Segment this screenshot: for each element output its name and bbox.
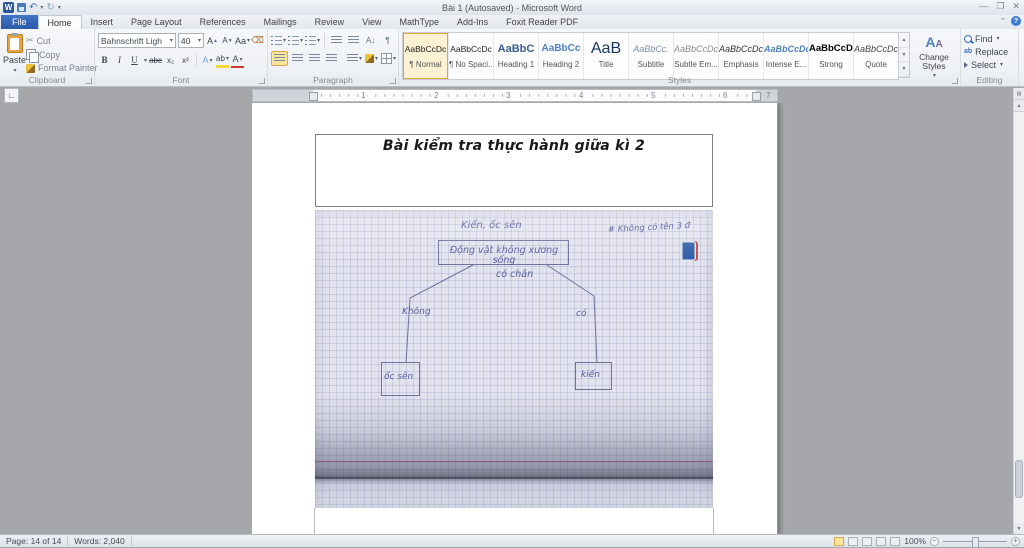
style-name: Heading 2	[539, 60, 583, 69]
minimize-ribbon-icon[interactable]: ⌃	[1000, 17, 1006, 25]
show-hide-marks-button[interactable]: ¶	[380, 34, 395, 47]
diagram-branch-no-label: Không	[402, 307, 431, 317]
indent-marker-left[interactable]	[309, 92, 318, 101]
underline-button[interactable]: U	[128, 54, 141, 67]
style-preview: AaBbCcDc	[809, 38, 853, 60]
change-styles-icon: AA	[925, 35, 942, 52]
tab-add-ins[interactable]: Add-Ins	[448, 15, 497, 29]
style-heading-2[interactable]: AaBbCc Heading 2	[538, 33, 583, 79]
style-emphasis[interactable]: AaBbCcDc Emphasis	[718, 33, 763, 79]
style-subtitle[interactable]: AaBbCc. Subtitle	[628, 33, 673, 79]
replace-button[interactable]: ab Replace	[964, 45, 1015, 58]
ruler-number: 2	[432, 90, 440, 101]
notebook-margin-line	[315, 461, 713, 462]
italic-button[interactable]: I	[113, 54, 126, 67]
grow-font-button[interactable]: A▲	[206, 34, 219, 47]
help-icon[interactable]: ?	[1011, 16, 1021, 26]
diagram-root-label: Động vật không xương sống	[444, 246, 564, 266]
style-no-spacing[interactable]: AaBbCcDc ¶ No Spaci...	[448, 33, 493, 79]
group-styles: AaBbCcDc ¶ Normal AaBbCcDc ¶ No Spaci...…	[399, 29, 961, 86]
align-right-button[interactable]	[307, 52, 322, 65]
bold-button[interactable]: B	[98, 54, 111, 67]
paragraph-group-label: Paragraph	[268, 75, 398, 85]
font-color-button[interactable]: A▾	[231, 53, 244, 68]
borders-icon	[381, 53, 392, 64]
font-family-dropdown-icon[interactable]: ▾	[170, 37, 173, 44]
align-center-button[interactable]	[290, 52, 305, 65]
format-painter-icon	[26, 64, 35, 73]
multilevel-list-icon	[305, 36, 316, 45]
scroll-up-icon[interactable]: ▲	[1014, 100, 1024, 112]
font-family-value: Bahnschrift Ligh	[101, 36, 162, 46]
paste-button[interactable]: Paste ▾	[3, 31, 26, 74]
document-page[interactable]: Bài kiểm tra thực hành giữa kì 2 Kiến, ố…	[252, 103, 778, 535]
style-name: ¶ Normal	[403, 60, 448, 69]
style-preview: AaBbCcDc	[449, 38, 493, 60]
bold-label: B	[101, 55, 107, 65]
view-full-screen-icon[interactable]	[848, 537, 858, 546]
ruler-number: 4	[577, 90, 585, 101]
superscript-button[interactable]: x²	[179, 54, 192, 67]
subscript-label: x₂	[167, 56, 174, 65]
style-name: Subtitle	[629, 60, 673, 69]
diagram-branch-yes-label: có	[576, 309, 586, 319]
style-preview: AaBbCcDc	[674, 38, 718, 60]
vertical-scrollbar[interactable]: ▤ ▲ ▼	[1013, 88, 1024, 535]
multilevel-list-button[interactable]: ▾	[305, 34, 320, 47]
text-effects-button[interactable]: A▾	[201, 54, 214, 67]
style-normal[interactable]: AaBbCcDc ¶ Normal	[403, 33, 448, 79]
clear-formatting-icon: ⌫	[251, 35, 264, 46]
diagram-criterion-label: có chân	[496, 269, 533, 280]
styles-scroll-up-icon[interactable]: ▲	[899, 33, 909, 48]
highlight-button[interactable]: ab▾	[216, 52, 229, 68]
document-canvas[interactable]: Bài kiểm tra thực hành giữa kì 2 Kiến, ố…	[0, 103, 1014, 535]
align-left-icon	[274, 54, 285, 63]
style-preview: AaBbC	[494, 38, 538, 60]
font-color-icon: A	[233, 54, 239, 64]
select-label: Select	[971, 60, 996, 70]
group-font: Bahnschrift Ligh ▾ 40 ▾ A▲ A▼ Aa▾ ⌫ B I …	[95, 29, 268, 86]
cut-button[interactable]: ✂ Cut	[26, 35, 98, 46]
style-quote[interactable]: AaBbCcDc Quote	[853, 33, 898, 79]
italic-label: I	[118, 55, 121, 65]
line-spacing-icon	[347, 54, 358, 63]
restore-button[interactable]: ❐	[996, 1, 1004, 12]
align-right-icon	[309, 54, 320, 63]
change-case-button[interactable]: Aa▾	[236, 34, 249, 47]
style-name: Heading 1	[494, 60, 538, 69]
stamp-logo-icon	[681, 241, 696, 261]
replace-label: Replace	[975, 47, 1008, 57]
tab-file[interactable]: File	[1, 15, 38, 29]
pilcrow-icon: ¶	[385, 36, 389, 45]
group-clipboard: Paste ▾ ✂ Cut Copy Format Painter Clipbo…	[0, 29, 95, 86]
font-size-combo[interactable]: 40 ▾	[178, 33, 204, 48]
diagram-photo[interactable]: Kiến, ốc sên # Không có tên 3 đ Động vật…	[315, 210, 713, 508]
zoom-in-icon[interactable]: +	[1011, 537, 1020, 546]
zoom-out-icon[interactable]: −	[930, 537, 939, 546]
minimize-button[interactable]: —	[979, 1, 988, 12]
ruler-number: 3	[504, 90, 512, 101]
style-preview: AaBbCc	[539, 38, 583, 60]
style-preview: AaBbCcDc	[719, 38, 763, 60]
decrease-indent-icon	[331, 36, 342, 45]
select-icon	[964, 62, 968, 68]
style-heading-1[interactable]: AaBbC Heading 1	[493, 33, 538, 79]
copy-button[interactable]: Copy	[26, 49, 98, 60]
select-button[interactable]: Select ▾	[964, 58, 1015, 71]
style-intense-emphasis[interactable]: AaBbCcDc Intense E...	[763, 33, 808, 79]
underline-dropdown-icon[interactable]: ▾	[144, 57, 147, 64]
ribbon-tabs: File Home Insert Page Layout References …	[0, 15, 1024, 29]
paragraph-dialog-launcher-icon[interactable]	[390, 78, 396, 84]
style-strong[interactable]: AaBbCcDc Strong	[808, 33, 853, 79]
tab-insert[interactable]: Insert	[82, 15, 123, 29]
borders-button[interactable]: ▾	[381, 52, 396, 65]
document-title-box[interactable]: Bài kiểm tra thực hành giữa kì 2	[315, 134, 713, 207]
zoom-slider[interactable]	[943, 541, 1007, 542]
diagram-leaf-yes-label: kiến	[581, 370, 600, 380]
shading-icon	[365, 54, 374, 63]
cut-icon: ✂	[26, 35, 34, 46]
decrease-indent-button[interactable]	[329, 34, 344, 47]
ruler-number: 6	[721, 90, 729, 101]
style-preview: AaBbCcDc	[764, 38, 808, 60]
styles-group-label: Styles	[399, 75, 960, 85]
format-painter-button[interactable]: Format Painter	[26, 63, 98, 73]
photo-frame-continuation	[314, 508, 714, 535]
diagram-leaf-no-label: ốc sên	[384, 372, 413, 382]
line-spacing-button[interactable]: ▾	[347, 52, 362, 65]
tab-view[interactable]: View	[353, 15, 390, 29]
strikethrough-label: abc	[149, 56, 162, 65]
justify-icon	[326, 54, 337, 63]
underline-label: U	[131, 55, 138, 65]
sort-button[interactable]: A↓	[363, 34, 378, 47]
clipboard-group-label: Clipboard	[0, 75, 94, 85]
style-preview: AaB	[584, 38, 628, 60]
cut-label: Cut	[37, 36, 51, 46]
styles-gallery: AaBbCcDc ¶ Normal AaBbCcDc ¶ No Spaci...…	[402, 32, 899, 80]
strikethrough-button[interactable]: abc	[149, 54, 162, 67]
style-name: Emphasis	[719, 60, 763, 69]
styles-scroll-down-icon[interactable]: ▼	[899, 48, 909, 63]
zoom-slider-thumb[interactable]	[972, 537, 979, 548]
paste-dropdown-icon[interactable]: ▾	[14, 67, 17, 74]
font-size-value: 40	[181, 36, 190, 46]
increase-indent-button[interactable]	[346, 34, 361, 47]
numbering-icon	[288, 36, 299, 45]
subscript-button[interactable]: x₂	[164, 54, 177, 67]
ruler-text-area: 1 2 3 4 5 6	[313, 90, 756, 101]
style-name: Subtle Em...	[674, 60, 718, 69]
style-preview: AaBbCcDc	[403, 38, 448, 60]
tab-foxit-reader-pdf[interactable]: Foxit Reader PDF	[497, 15, 587, 29]
bullets-icon	[271, 36, 282, 45]
group-paragraph: ▾ ▾ ▾ A↓ ¶ ▾ ▾ ▾ Paragraph	[268, 29, 399, 86]
highlight-icon: ab	[216, 54, 225, 63]
copy-icon	[26, 49, 36, 60]
view-outline-icon[interactable]	[876, 537, 886, 546]
zoom-level[interactable]: 100%	[904, 536, 926, 546]
copy-label: Copy	[39, 50, 60, 60]
styles-dialog-launcher-icon[interactable]	[952, 78, 958, 84]
tab-review[interactable]: Review	[306, 15, 354, 29]
justify-button[interactable]	[324, 52, 339, 65]
find-button[interactable]: Find ▾	[964, 32, 1015, 45]
style-name: Quote	[854, 60, 898, 69]
style-title[interactable]: AaB Title	[583, 33, 628, 79]
paste-label: Paste	[3, 55, 26, 65]
increase-indent-icon	[348, 36, 359, 45]
view-print-layout-icon[interactable]	[834, 537, 844, 546]
style-subtle-emphasis[interactable]: AaBbCcDc Subtle Em...	[673, 33, 718, 79]
indent-marker-right[interactable]	[752, 92, 761, 101]
style-name: Strong	[809, 60, 853, 69]
ruler-number: 1	[359, 90, 367, 101]
font-group-label: Font	[95, 75, 267, 85]
status-bar: Page: 14 of 14 Words: 2,040 100% − +	[0, 534, 1024, 547]
group-editing: Find ▾ ab Replace Select ▾ Editing	[961, 29, 1019, 86]
tab-page-layout[interactable]: Page Layout	[122, 15, 191, 29]
tab-home[interactable]: Home	[38, 15, 82, 29]
window-title: Bài 1 (Autosaved) - Microsoft Word	[0, 3, 1024, 13]
paste-clipboard-icon	[7, 34, 23, 53]
style-name: ¶ No Spaci...	[449, 60, 493, 69]
tab-selector-button[interactable]: ∟	[4, 88, 19, 103]
change-styles-label: Change Styles	[913, 53, 955, 71]
style-name: Title	[584, 60, 628, 69]
font-family-combo[interactable]: Bahnschrift Ligh ▾	[98, 33, 176, 48]
scrollbar-thumb[interactable]	[1015, 460, 1023, 498]
tab-mailings[interactable]: Mailings	[255, 15, 306, 29]
find-label: Find	[975, 34, 993, 44]
word-count[interactable]: Words: 2,040	[68, 536, 131, 546]
editing-group-label: Editing	[961, 75, 1018, 85]
ribbon: Paste ▾ ✂ Cut Copy Format Painter Clipbo…	[0, 29, 1024, 87]
view-web-layout-icon[interactable]	[862, 537, 872, 546]
align-center-icon	[292, 54, 303, 63]
ruler-number: 7	[764, 90, 772, 101]
shading-button[interactable]: ▾	[364, 52, 379, 65]
clear-formatting-button[interactable]: ⌫	[251, 34, 264, 47]
text-effects-icon: A	[203, 55, 209, 65]
superscript-label: x²	[182, 56, 189, 65]
ruler-toggle-button[interactable]: ▤	[1014, 88, 1024, 100]
change-case-icon: Aa	[235, 36, 246, 46]
numbering-button[interactable]: ▾	[288, 34, 303, 47]
font-dialog-launcher-icon[interactable]	[259, 78, 265, 84]
replace-icon: ab	[964, 48, 972, 55]
style-preview: AaBbCcDc	[854, 38, 898, 60]
font-size-dropdown-icon[interactable]: ▾	[198, 37, 201, 44]
tab-references[interactable]: References	[191, 15, 255, 29]
title-bar: W ↶▾ ↻ ▾ Bài 1 (Autosaved) - Microsoft W…	[0, 0, 1024, 16]
tab-mathtype[interactable]: MathType	[391, 15, 449, 29]
find-icon	[964, 35, 972, 43]
change-styles-button[interactable]: AA Change Styles ▾	[913, 31, 955, 74]
shrink-font-button[interactable]: A▼	[221, 34, 234, 47]
format-painter-label: Format Painter	[38, 63, 98, 73]
sort-icon: A↓	[366, 36, 375, 45]
document-heading: Bài kiểm tra thực hành giữa kì 2	[316, 138, 712, 154]
view-draft-icon[interactable]	[890, 537, 900, 546]
align-left-button[interactable]	[271, 51, 288, 66]
clipboard-dialog-launcher-icon[interactable]	[86, 78, 92, 84]
page-indicator[interactable]: Page: 14 of 14	[0, 536, 68, 546]
page-fold-shadow	[315, 477, 713, 479]
ruler-row: ∟ 1 2 3 4 5 6 7	[0, 88, 1024, 103]
diagram-top-label: Kiến, ốc sên	[461, 220, 522, 231]
style-name: Intense E...	[764, 60, 808, 69]
bullets-button[interactable]: ▾	[271, 34, 286, 47]
style-preview: AaBbCc.	[629, 38, 673, 60]
horizontal-ruler[interactable]: 1 2 3 4 5 6 7	[252, 89, 778, 102]
ruler-number: 5	[649, 90, 657, 101]
close-button[interactable]: ✕	[1012, 1, 1020, 12]
